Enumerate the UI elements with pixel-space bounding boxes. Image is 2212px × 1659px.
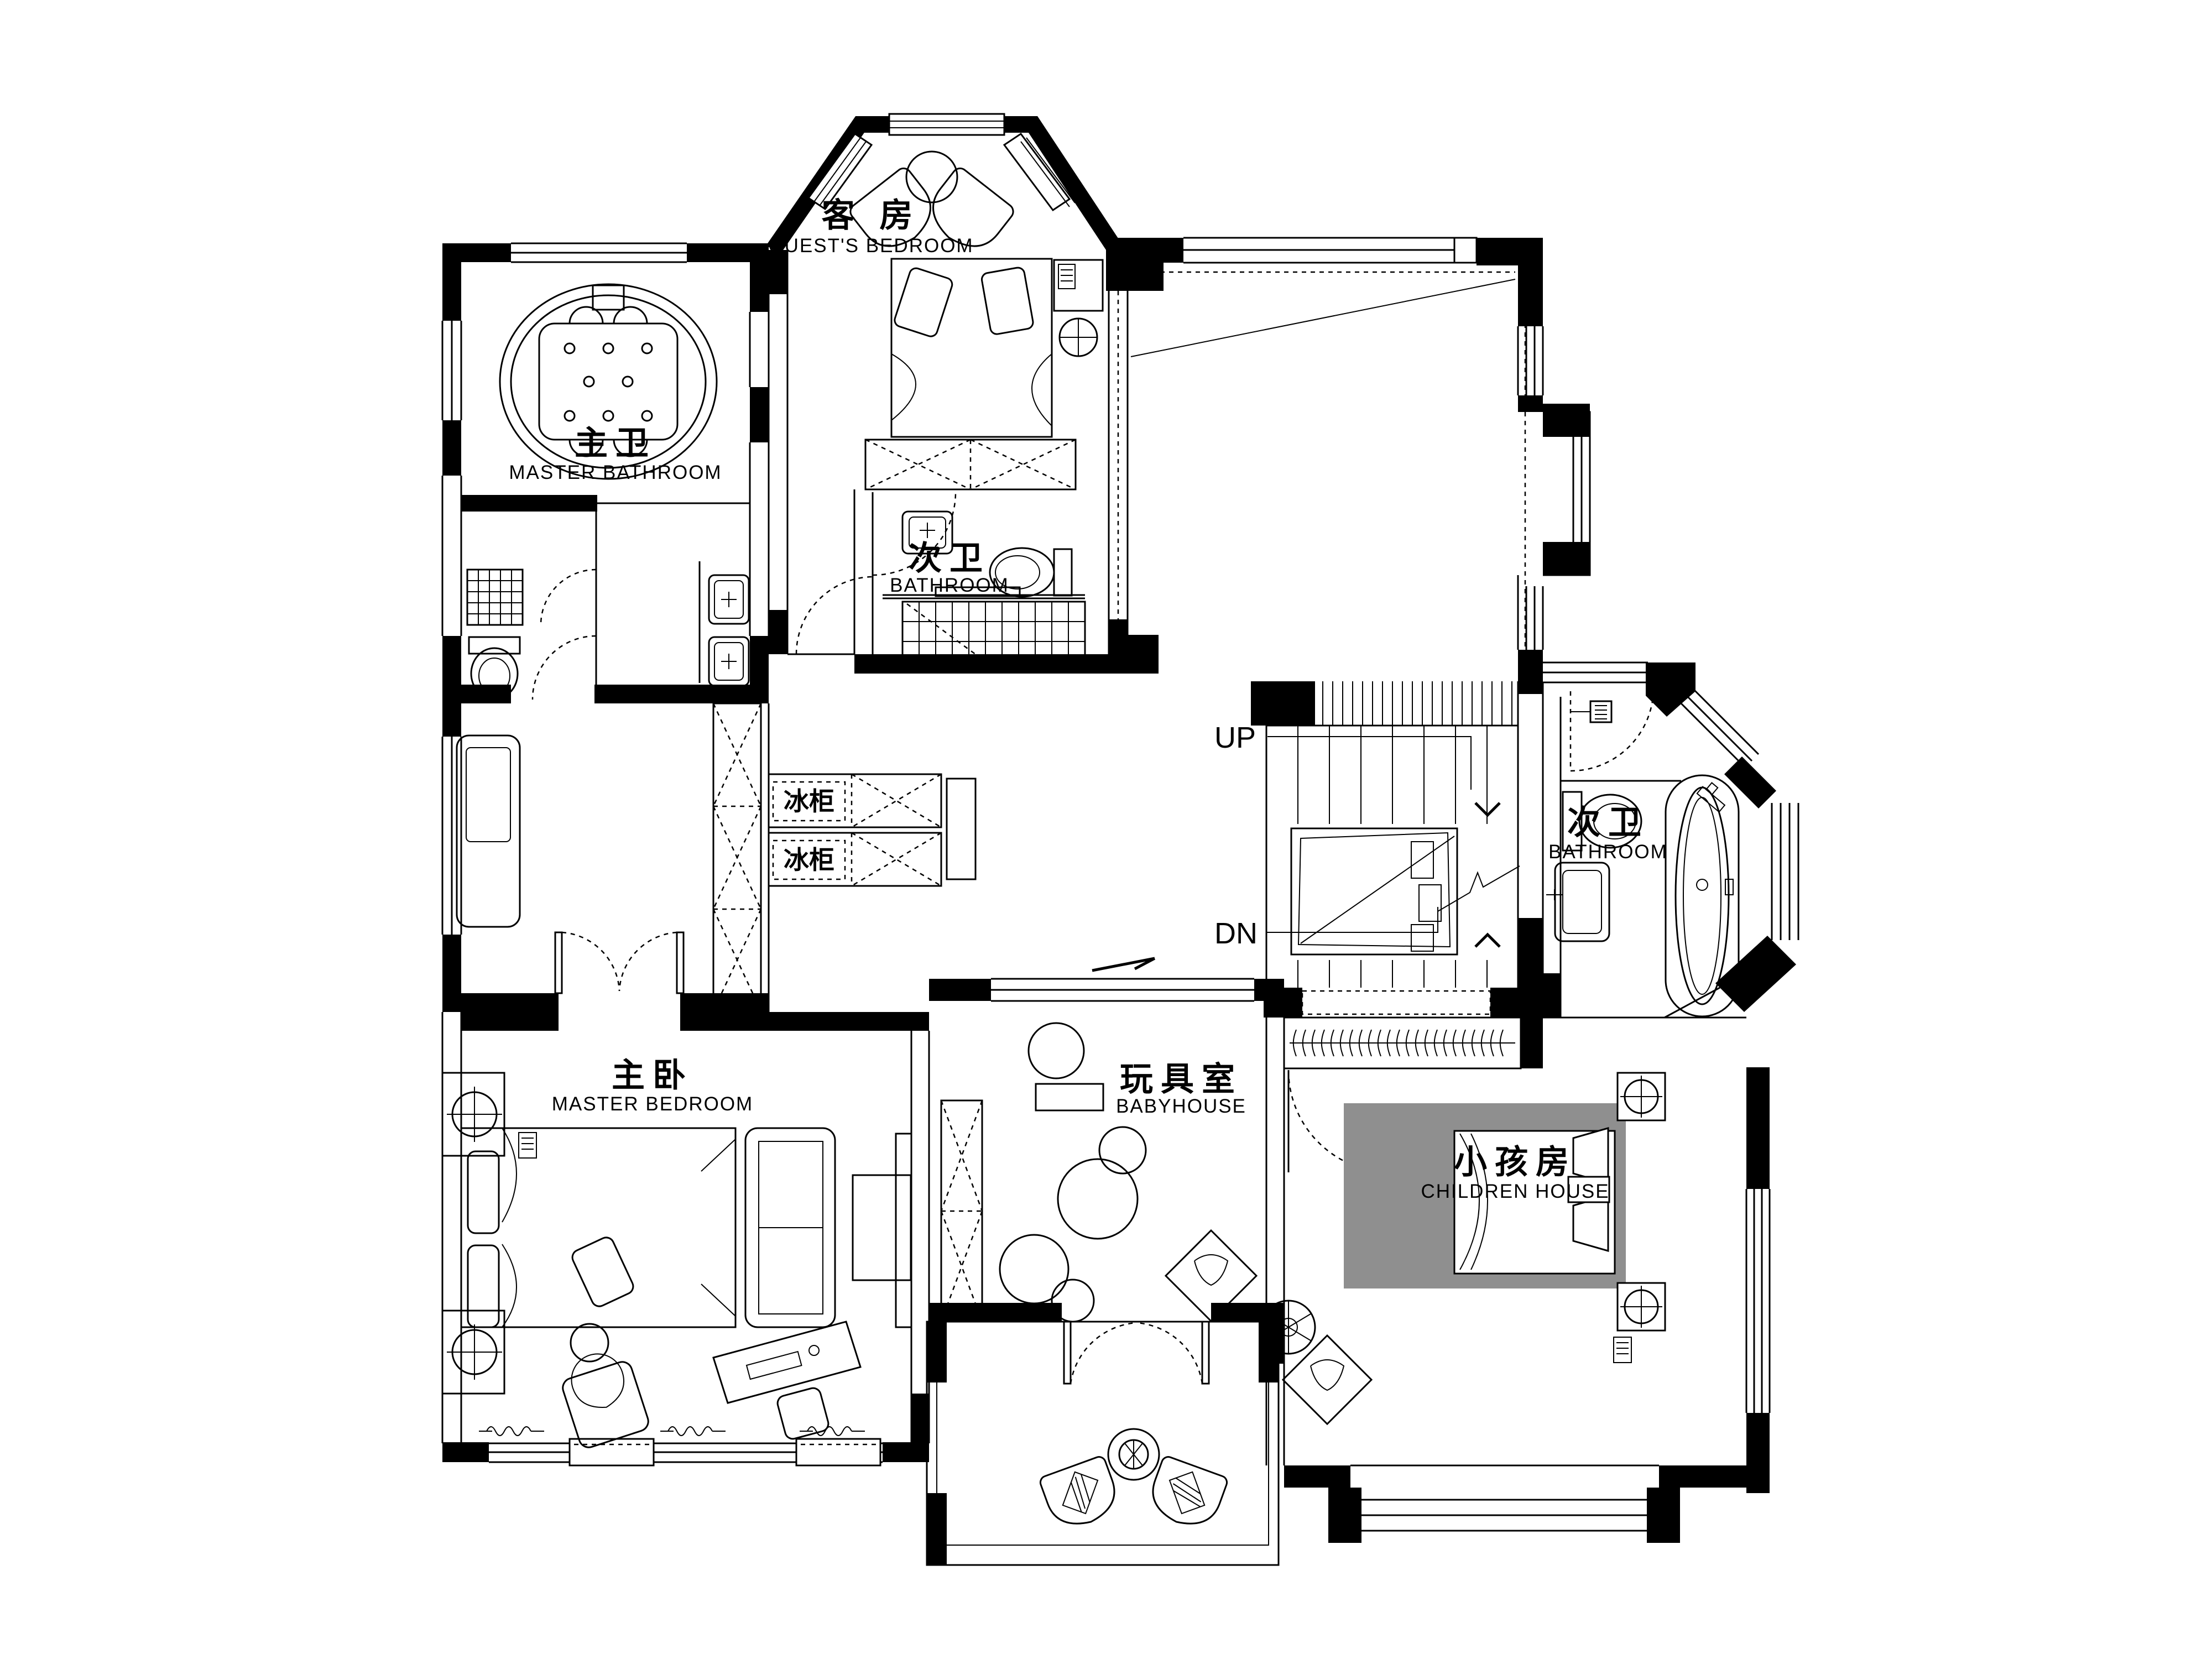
terrace-chair [1039, 1455, 1123, 1533]
room-label-master-bathroom-en: MASTER BATHROOM [509, 462, 722, 483]
room-label-children-room-zh: 小孩房 [1454, 1144, 1577, 1181]
stairs-up-label: UP [1214, 721, 1256, 754]
guest-bed [865, 259, 1103, 489]
room-label-master-bedroom-zh: 主卧 [612, 1057, 693, 1094]
toy-room-walls [929, 979, 1284, 1384]
room-label-guest-bedroom-zh: 客 房 [822, 197, 921, 234]
terrace [927, 1322, 1279, 1565]
room-label-toy-room-zh: 玩具室 [1120, 1061, 1243, 1098]
master-bed [461, 1128, 735, 1327]
room-label-bathroom-middle-zh: 次卫 [909, 540, 990, 577]
stairs-down-label: DN [1214, 917, 1258, 950]
children-closet [1284, 1018, 1521, 1068]
room-label-master-bedroom-en: MASTER BEDROOM [552, 1093, 753, 1115]
staircase [1251, 681, 1543, 988]
room-label-bathroom-right-zh: 次卫 [1567, 804, 1649, 841]
annotation-labels: 冰柜 冰柜 UP DN [784, 721, 1258, 950]
master-bedroom-furniture [555, 1128, 911, 1450]
children-room-furniture [1262, 1073, 1665, 1424]
room-label-master-bathroom-zh: 主卫 [575, 425, 656, 462]
room-label-bathroom-middle-en: BATHROOM [890, 575, 1009, 596]
terrace-chair [1144, 1455, 1229, 1533]
freezer-label-top: 冰柜 [784, 787, 834, 816]
dressing-room [442, 703, 769, 1012]
room-label-children-room-en: CHILDREN HOUSE [1421, 1181, 1609, 1202]
master-bathroom-fixtures [467, 561, 749, 700]
void-room [1131, 238, 1590, 694]
freezer-label-bottom: 冰柜 [784, 846, 834, 874]
room-label-toy-room-en: BABYHOUSE [1116, 1095, 1246, 1117]
room-label-guest-bedroom-en: GUEST'S BEDROOM [768, 235, 973, 257]
floor-plan-drawing: 客 房 GUEST'S BEDROOM 主卫 MASTER BATHROOM 次… [0, 0, 2212, 1659]
room-label-bathroom-right-en: BATHROOM [1548, 841, 1668, 863]
